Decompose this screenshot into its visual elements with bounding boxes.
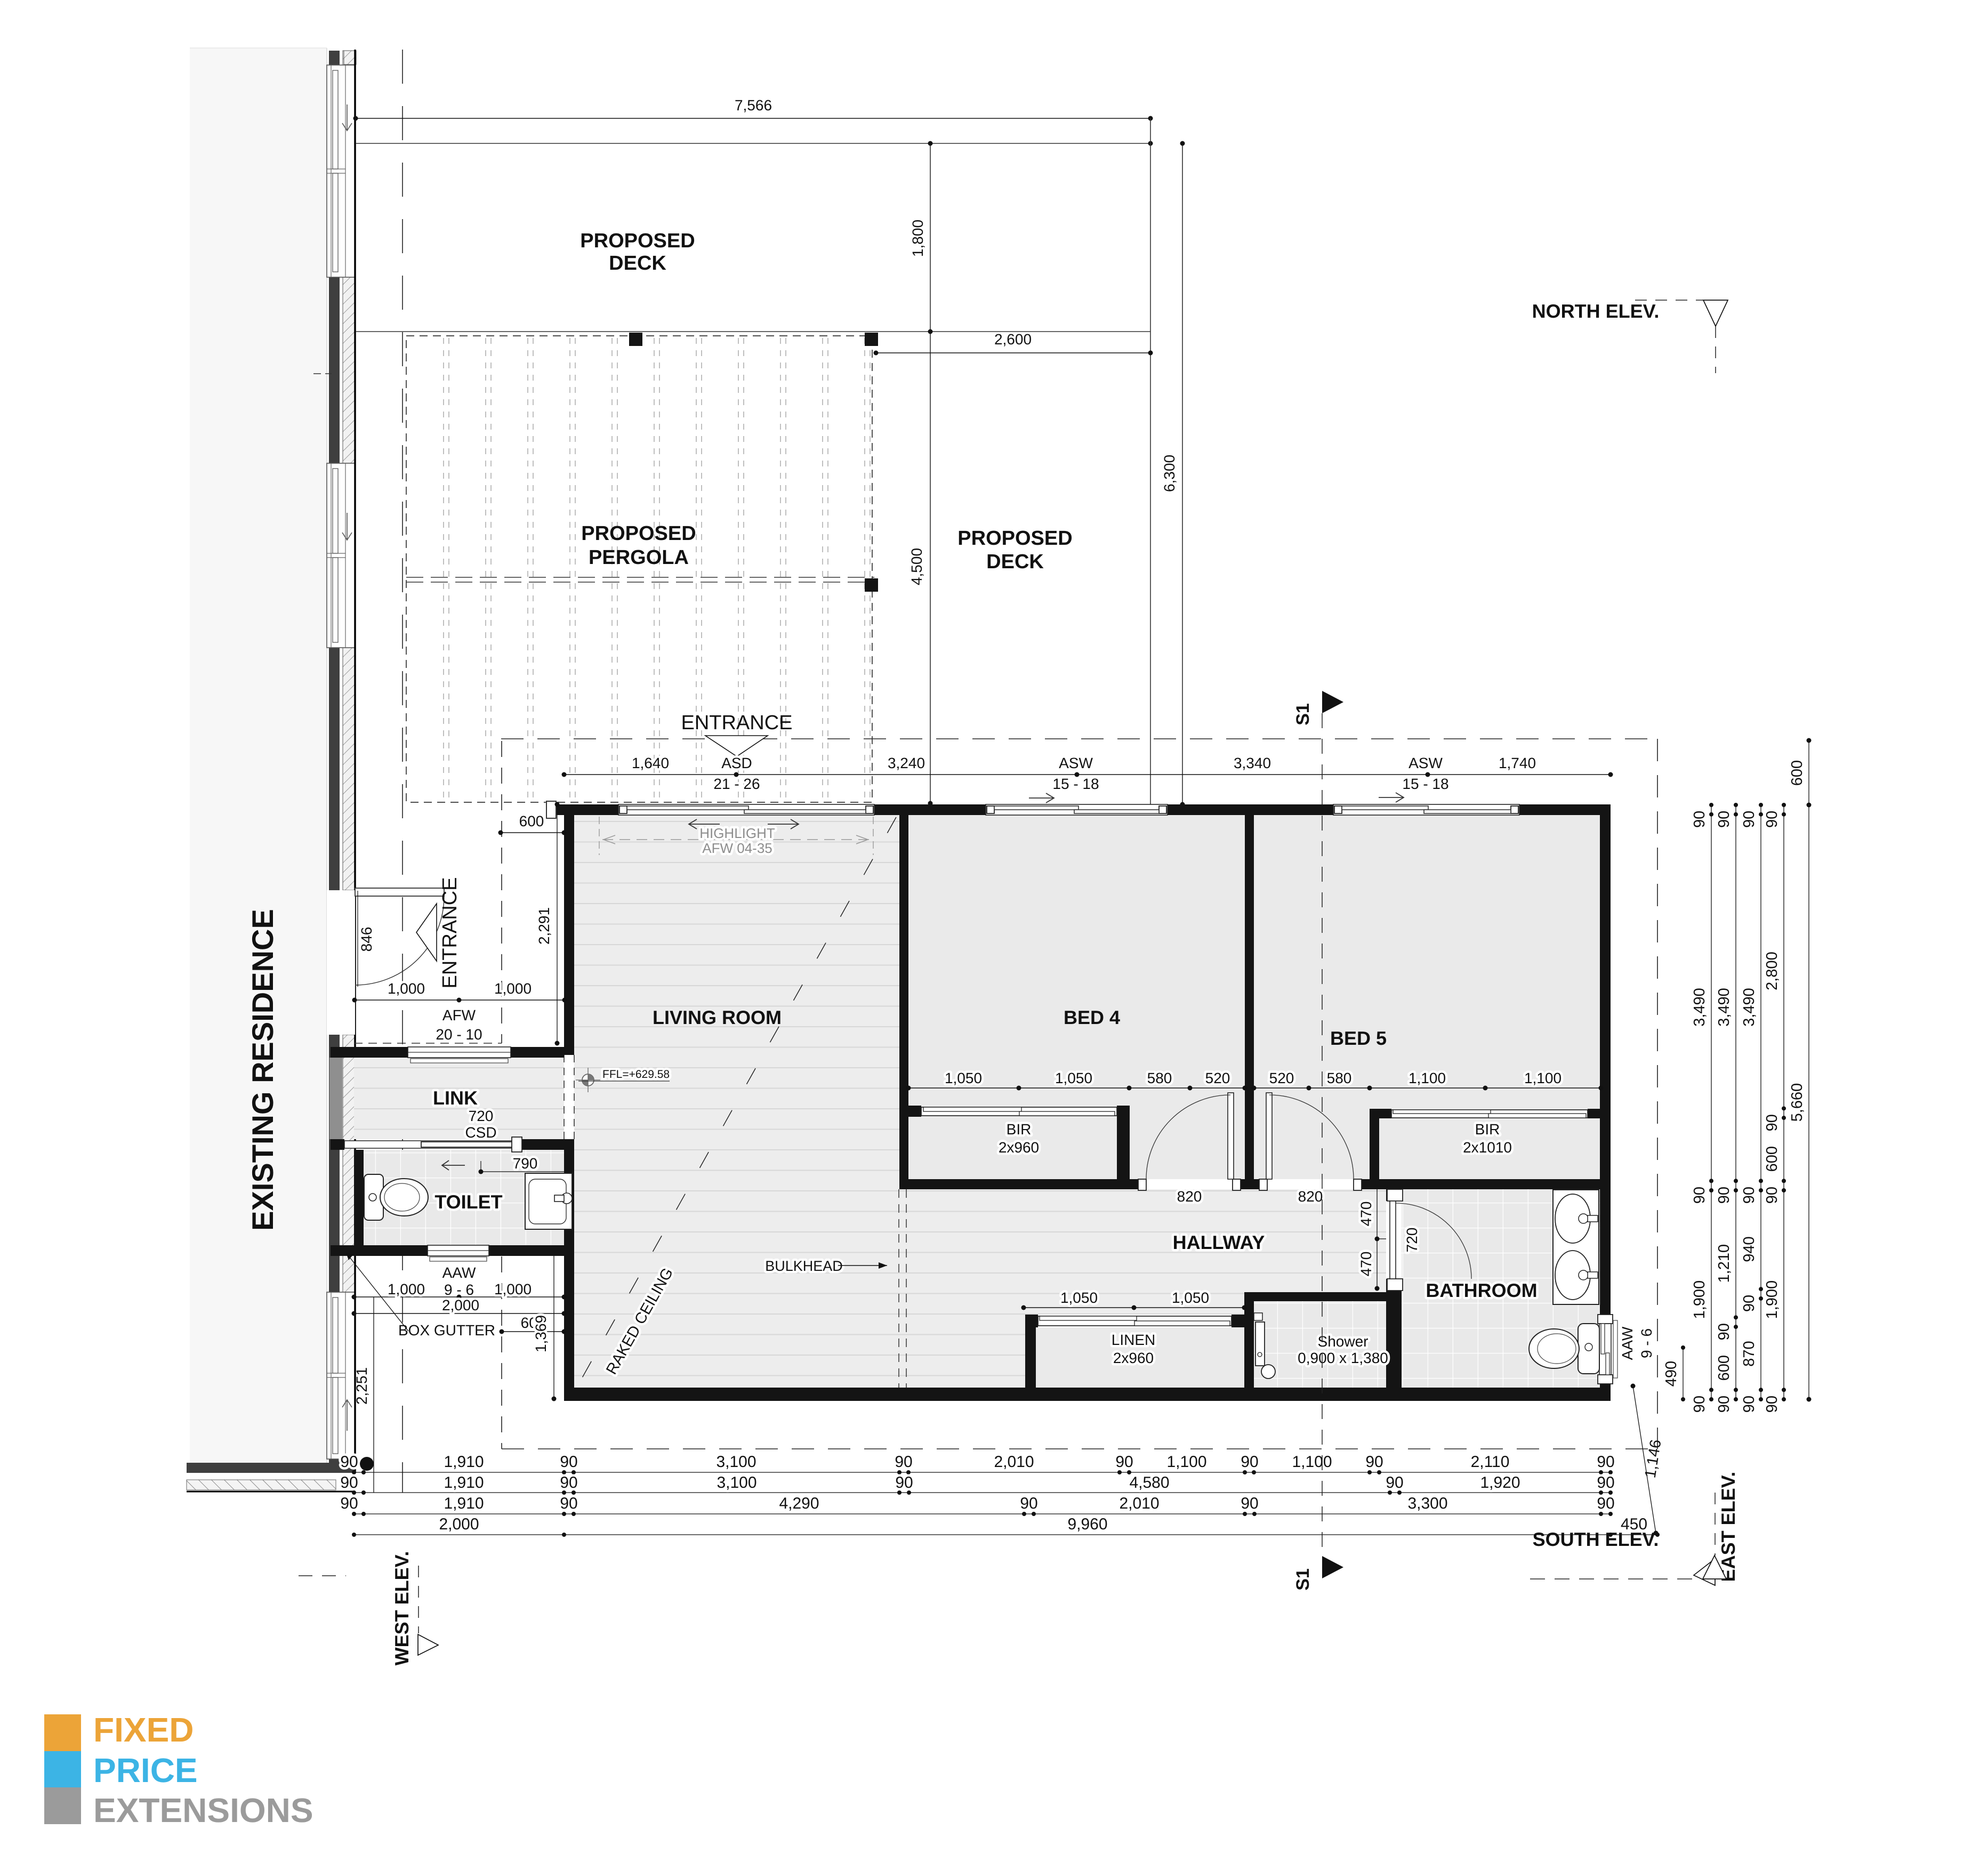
svg-text:ASD: ASD	[721, 755, 752, 771]
svg-text:90: 90	[560, 1474, 577, 1492]
svg-text:90: 90	[1764, 1187, 1781, 1204]
svg-text:3,340: 3,340	[1234, 755, 1271, 771]
svg-text:470: 470	[1358, 1252, 1374, 1277]
svg-text:580: 580	[1147, 1070, 1172, 1086]
svg-text:ENTRANCE: ENTRANCE	[439, 877, 461, 988]
svg-text:Shower: Shower	[1318, 1333, 1369, 1350]
svg-text:EXTENSIONS: EXTENSIONS	[93, 1791, 313, 1829]
svg-text:DECK: DECK	[609, 252, 666, 275]
svg-text:470: 470	[1358, 1202, 1374, 1227]
svg-text:AFW: AFW	[442, 1007, 476, 1023]
svg-text:90: 90	[1386, 1474, 1403, 1492]
svg-text:PROPOSED: PROPOSED	[581, 522, 696, 545]
svg-text:1,210: 1,210	[1716, 1244, 1733, 1283]
svg-text:AAW: AAW	[442, 1264, 476, 1281]
svg-text:940: 940	[1741, 1236, 1758, 1262]
svg-text:1,100: 1,100	[1408, 1070, 1446, 1086]
svg-text:90: 90	[1020, 1495, 1037, 1512]
svg-text:2x960: 2x960	[999, 1139, 1039, 1156]
svg-text:1,000: 1,000	[494, 1281, 532, 1297]
svg-text:0,900 x 1,380: 0,900 x 1,380	[1298, 1350, 1388, 1366]
svg-text:AAW: AAW	[1619, 1326, 1636, 1360]
svg-text:1,000: 1,000	[388, 980, 425, 997]
svg-text:HALLWAY: HALLWAY	[1173, 1231, 1265, 1253]
svg-text:90: 90	[1716, 1187, 1733, 1204]
svg-text:BATHROOM: BATHROOM	[1426, 1279, 1537, 1301]
svg-text:WEST ELEV.: WEST ELEV.	[391, 1551, 413, 1666]
svg-text:90: 90	[340, 1495, 358, 1512]
svg-text:BIR: BIR	[1475, 1121, 1500, 1138]
svg-text:LINK: LINK	[433, 1087, 478, 1109]
svg-text:3,240: 3,240	[888, 755, 925, 771]
svg-text:820: 820	[1298, 1188, 1323, 1205]
svg-text:ASW: ASW	[1408, 755, 1443, 771]
svg-text:1,369: 1,369	[533, 1315, 549, 1352]
svg-text:90: 90	[340, 1453, 358, 1471]
svg-text:ENTRANCE: ENTRANCE	[681, 712, 792, 734]
svg-text:600: 600	[519, 813, 544, 829]
svg-text:720: 720	[469, 1108, 494, 1124]
svg-text:90: 90	[1741, 811, 1758, 828]
svg-text:HIGHLIGHT: HIGHLIGHT	[699, 825, 775, 841]
svg-text:600: 600	[1716, 1355, 1733, 1381]
svg-text:9 - 6: 9 - 6	[1638, 1328, 1655, 1358]
svg-text:90: 90	[1115, 1453, 1133, 1471]
svg-text:S1: S1	[1293, 703, 1313, 726]
svg-text:15 - 18: 15 - 18	[1402, 776, 1448, 792]
svg-text:90: 90	[1691, 811, 1708, 828]
svg-text:90: 90	[1691, 1187, 1708, 1204]
svg-text:2x960: 2x960	[1113, 1350, 1154, 1366]
svg-text:90: 90	[1241, 1495, 1258, 1512]
svg-text:2,251: 2,251	[353, 1367, 370, 1405]
svg-text:BED 5: BED 5	[1330, 1027, 1387, 1049]
svg-text:EAST ELEV.: EAST ELEV.	[1717, 1472, 1739, 1582]
svg-text:846: 846	[358, 927, 375, 952]
svg-text:90: 90	[1716, 811, 1733, 828]
svg-text:90: 90	[340, 1474, 358, 1492]
svg-text:1,900: 1,900	[1691, 1280, 1708, 1319]
svg-text:1,740: 1,740	[1499, 755, 1536, 771]
svg-text:3,100: 3,100	[716, 1453, 756, 1471]
svg-text:LINEN: LINEN	[1112, 1332, 1155, 1348]
svg-text:S1: S1	[1293, 1568, 1313, 1591]
svg-text:3,100: 3,100	[717, 1474, 756, 1492]
svg-text:1,050: 1,050	[945, 1070, 982, 1086]
svg-text:2,000: 2,000	[439, 1516, 479, 1533]
svg-text:2,110: 2,110	[1471, 1453, 1510, 1471]
svg-text:520: 520	[1269, 1070, 1294, 1086]
svg-text:3,490: 3,490	[1741, 988, 1758, 1027]
svg-text:9,960: 9,960	[1067, 1516, 1107, 1533]
svg-text:PROPOSED: PROPOSED	[580, 230, 695, 252]
svg-text:90: 90	[1716, 1396, 1733, 1413]
svg-text:DECK: DECK	[986, 551, 1044, 573]
svg-text:BED 4: BED 4	[1064, 1006, 1120, 1028]
svg-text:1,910: 1,910	[444, 1495, 484, 1512]
svg-text:90: 90	[1716, 1323, 1733, 1340]
svg-text:1,050: 1,050	[1172, 1289, 1209, 1306]
svg-text:90: 90	[1691, 1396, 1708, 1413]
svg-text:1,800: 1,800	[910, 220, 926, 257]
svg-text:PROPOSED: PROPOSED	[957, 527, 1072, 550]
svg-text:EXISTING RESIDENCE: EXISTING RESIDENCE	[246, 909, 279, 1231]
svg-text:2,800: 2,800	[1764, 952, 1781, 990]
svg-text:490: 490	[1663, 1361, 1680, 1387]
svg-text:PERGOLA: PERGOLA	[589, 546, 689, 569]
svg-text:LIVING ROOM: LIVING ROOM	[653, 1006, 782, 1028]
svg-text:90: 90	[1241, 1453, 1258, 1471]
svg-text:2,291: 2,291	[536, 907, 552, 945]
svg-text:600: 600	[1789, 760, 1806, 786]
svg-text:PRICE: PRICE	[93, 1751, 198, 1790]
svg-text:20 - 10: 20 - 10	[436, 1026, 482, 1043]
svg-text:90: 90	[895, 1474, 913, 1492]
svg-text:CSD: CSD	[465, 1124, 496, 1141]
svg-text:1,100: 1,100	[1292, 1453, 1332, 1471]
svg-text:1,000: 1,000	[388, 1281, 425, 1297]
svg-text:600: 600	[1764, 1146, 1781, 1172]
svg-text:1,100: 1,100	[1166, 1453, 1206, 1471]
svg-text:90: 90	[1764, 811, 1781, 828]
svg-text:FIXED: FIXED	[93, 1711, 194, 1749]
svg-text:520: 520	[1205, 1070, 1230, 1086]
svg-text:NORTH ELEV.: NORTH ELEV.	[1532, 300, 1660, 322]
svg-text:5,660: 5,660	[1789, 1083, 1806, 1122]
svg-text:90: 90	[1764, 1114, 1781, 1131]
svg-text:3,490: 3,490	[1716, 988, 1733, 1027]
svg-text:870: 870	[1741, 1341, 1758, 1366]
svg-text:3,300: 3,300	[1407, 1495, 1447, 1512]
svg-text:720: 720	[1404, 1228, 1420, 1253]
svg-text:1,920: 1,920	[1480, 1474, 1520, 1492]
svg-text:BOX GUTTER: BOX GUTTER	[398, 1322, 495, 1339]
svg-text:3,490: 3,490	[1691, 988, 1708, 1027]
svg-text:2,010: 2,010	[1119, 1495, 1159, 1512]
svg-text:SOUTH ELEV.: SOUTH ELEV.	[1533, 1528, 1659, 1550]
svg-text:ASW: ASW	[1059, 755, 1093, 771]
svg-text:2,010: 2,010	[994, 1453, 1034, 1471]
svg-text:4,500: 4,500	[908, 548, 925, 585]
svg-text:820: 820	[1177, 1188, 1202, 1205]
svg-text:4,290: 4,290	[779, 1495, 819, 1512]
svg-text:1,910: 1,910	[444, 1474, 484, 1492]
svg-text:90: 90	[895, 1453, 912, 1471]
svg-text:1,900: 1,900	[1764, 1280, 1781, 1319]
svg-text:90: 90	[1597, 1495, 1614, 1512]
svg-text:90: 90	[1597, 1474, 1614, 1492]
svg-text:90: 90	[560, 1453, 577, 1471]
svg-text:2,000: 2,000	[442, 1297, 479, 1313]
svg-text:1,000: 1,000	[494, 980, 532, 997]
svg-text:580: 580	[1327, 1070, 1352, 1086]
svg-text:90: 90	[560, 1495, 577, 1512]
svg-text:1,100: 1,100	[1524, 1070, 1562, 1086]
svg-text:1,050: 1,050	[1055, 1070, 1092, 1086]
svg-text:FFL=+629.58: FFL=+629.58	[602, 1068, 670, 1081]
svg-text:TOILET: TOILET	[434, 1191, 502, 1213]
svg-text:2,600: 2,600	[994, 331, 1032, 348]
svg-text:790: 790	[513, 1155, 538, 1172]
svg-text:21 - 26: 21 - 26	[713, 776, 760, 792]
svg-text:4,580: 4,580	[1129, 1474, 1169, 1492]
svg-text:90: 90	[1365, 1453, 1383, 1471]
svg-text:15 - 18: 15 - 18	[1052, 776, 1099, 792]
svg-text:BIR: BIR	[1007, 1121, 1032, 1138]
svg-text:2x1010: 2x1010	[1463, 1139, 1512, 1156]
svg-text:1,050: 1,050	[1060, 1289, 1098, 1306]
svg-text:AFW 04-35: AFW 04-35	[702, 840, 772, 856]
svg-text:6,300: 6,300	[1161, 455, 1178, 492]
svg-text:90: 90	[1741, 1295, 1758, 1312]
svg-text:1,640: 1,640	[632, 755, 669, 771]
svg-text:90: 90	[1764, 1396, 1781, 1413]
svg-text:90: 90	[1741, 1396, 1758, 1413]
svg-text:90: 90	[1597, 1453, 1614, 1471]
svg-text:7,566: 7,566	[735, 97, 772, 114]
svg-text:1,910: 1,910	[444, 1453, 484, 1471]
svg-text:90: 90	[1741, 1187, 1758, 1204]
svg-text:BULKHEAD: BULKHEAD	[765, 1258, 843, 1274]
